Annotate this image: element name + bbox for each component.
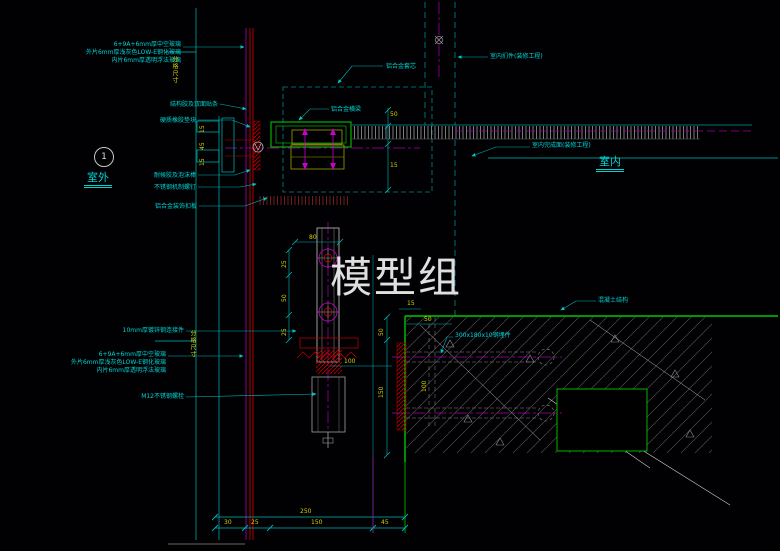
- glass-spec-line1: 6+9A+6mm厚中空玻璃: [86, 41, 181, 49]
- grid-dim-text-top: 分格尺寸: [170, 56, 179, 84]
- interior-finish-callout: 室内完成面(装修工程): [532, 142, 591, 150]
- dim-bracket-bottom: 100: [344, 359, 355, 365]
- dim-bracket-left-mid: 50: [282, 294, 288, 302]
- anchor-bolt-callout: M12不锈钢螺栓: [141, 393, 184, 401]
- glass-lines: [246, 28, 253, 540]
- bracket-bolt-lower: [318, 302, 338, 322]
- glass-spec-line1: 6+9A+6mm厚中空玻璃: [71, 351, 166, 359]
- rubber-block-callout: 硬质橡胶垫块: [160, 117, 196, 125]
- dim-mullion-top: 15: [200, 125, 206, 133]
- glass-spec-line3: 内片6mm厚透明浮法玻璃: [86, 57, 181, 65]
- alu-core-callout: 铝合金套芯: [386, 63, 416, 71]
- concrete-callout: 混凝土结构: [598, 297, 628, 305]
- dim-mullion-bot: 15: [200, 158, 206, 166]
- dim-embed-height: 100: [422, 381, 428, 392]
- transom-assembly: [197, 87, 752, 205]
- alu-transom-callout: 铝合金横梁: [331, 106, 361, 114]
- dim-mullion-mid: 45: [200, 142, 206, 150]
- dim-bottom-seg2: 25: [251, 520, 259, 526]
- dim-bracket-left-top: 25: [282, 260, 288, 268]
- dim-slab-lower: 150: [379, 387, 385, 398]
- ss-screw-callout: 不锈钢机制螺钉: [154, 184, 196, 192]
- dim-bottom-total: 250: [300, 509, 311, 515]
- dim-transom-upper: 50: [390, 112, 398, 118]
- glass-spec-line2: 外片6mm厚浅灰色LOW-E钢化玻璃: [71, 359, 166, 367]
- structural-sealant-callout: 结构胶及双面贴条: [170, 101, 218, 109]
- glass-spec-line3: 内片6mm厚透明浮法玻璃: [71, 367, 166, 375]
- glass-spec-top-callout: 6+9A+6mm厚中空玻璃 外片6mm厚浅灰色LOW-E钢化玻璃 内片6mm厚透…: [86, 41, 181, 64]
- glass-spec-line2: 外片6mm厚浅灰色LOW-E钢化玻璃: [86, 49, 181, 57]
- embed-plate-callout: 300x180x10钢埋件: [455, 332, 511, 340]
- steel-connector-callout: 10mm厚镀锌钢连接件: [123, 327, 184, 335]
- alu-trim-callout: 铝合金装饰扣板: [155, 203, 197, 211]
- bottom-dimension-chain: [168, 455, 408, 544]
- dim-edge: 50: [424, 317, 432, 323]
- dim-bottom-seg4: 45: [381, 520, 389, 526]
- cad-drawing-canvas: 6+9A+6mm厚中空玻璃 外片6mm厚浅灰色LOW-E钢化玻璃 内片6mm厚透…: [0, 0, 780, 551]
- zone-label-interior: 室内: [596, 156, 624, 172]
- dim-bracket-width: 80: [309, 235, 317, 241]
- dim-transom-lower: 15: [390, 163, 398, 169]
- dim-bottom-seg3: 150: [311, 520, 322, 526]
- watermark: 模型组: [330, 244, 462, 305]
- dim-bracket-left-bot: 25: [282, 328, 288, 336]
- detail-number-marker: 1: [94, 147, 114, 167]
- interior-panel-callout: 室内扪件(装修工程): [490, 53, 543, 61]
- dim-slab-upper: 50: [379, 328, 385, 336]
- dim-bottom-seg1: 30: [224, 520, 232, 526]
- grid-dim-text-bottom: 分格尺寸: [188, 330, 197, 358]
- zone-label-exterior: 室外: [84, 172, 112, 188]
- concrete-slab: [384, 309, 778, 533]
- weather-sealant-callout: 耐候胶及泡沫棒: [154, 172, 196, 180]
- glass-spec-bottom-callout: 6+9A+6mm厚中空玻璃 外片6mm厚浅灰色LOW-E钢化玻璃 内片6mm厚透…: [71, 351, 166, 374]
